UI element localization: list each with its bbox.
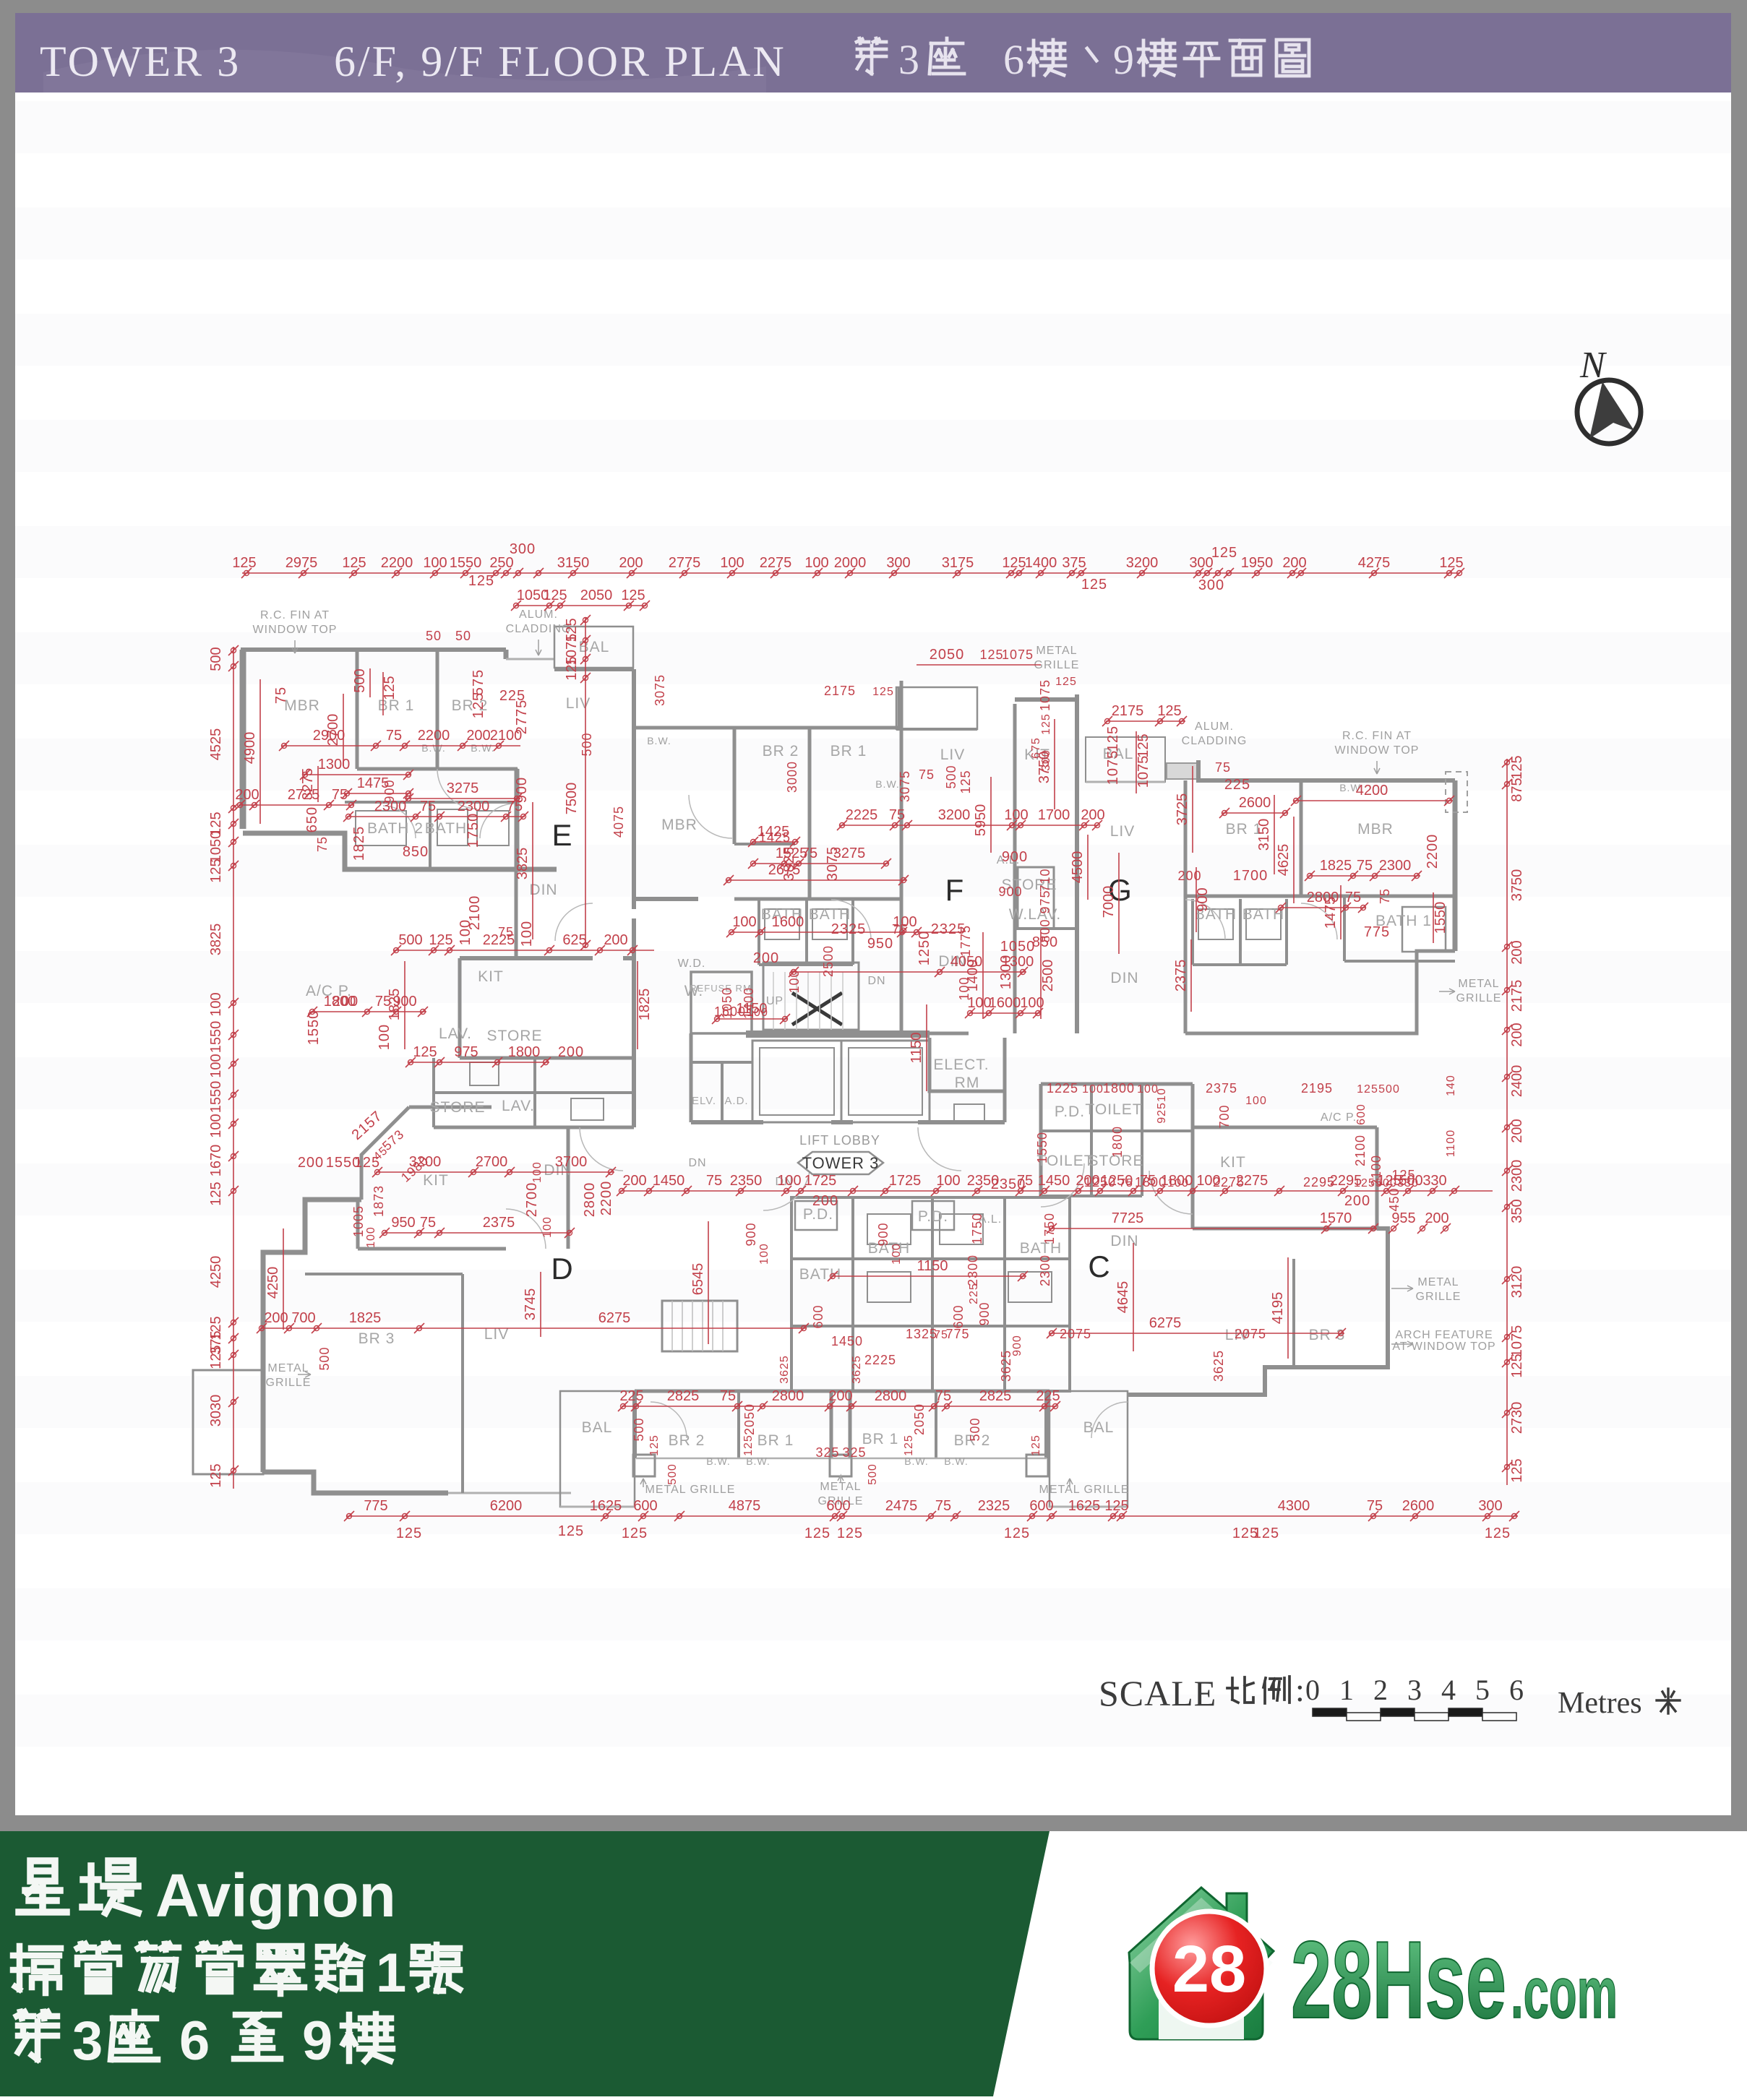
svg-text:BATH 2: BATH 2	[367, 820, 424, 837]
svg-text:2200: 2200	[381, 555, 413, 571]
svg-text:50: 50	[455, 629, 471, 643]
svg-text:.com: .com	[1511, 1953, 1618, 2034]
svg-text:2: 2	[1373, 1674, 1388, 1706]
svg-text:2225: 2225	[846, 807, 878, 823]
svg-text:4275: 4275	[1358, 555, 1391, 571]
svg-text:1625: 1625	[590, 1498, 622, 1514]
svg-text:1600: 1600	[772, 914, 804, 930]
svg-text:LIV: LIV	[566, 695, 591, 712]
svg-text:B.W.: B.W.	[421, 742, 446, 754]
svg-text:775: 775	[364, 1498, 387, 1514]
svg-text:1950: 1950	[1241, 555, 1274, 571]
svg-text:500: 500	[632, 1417, 646, 1441]
svg-text:GRILLE: GRILLE	[266, 1377, 312, 1389]
svg-text:KIT: KIT	[1220, 1154, 1246, 1171]
svg-text:R.C. FIN AT: R.C. FIN AT	[1342, 730, 1412, 742]
svg-text:200: 200	[828, 1388, 852, 1404]
svg-text:2475: 2475	[885, 1498, 918, 1514]
svg-text:1225: 1225	[1047, 1081, 1078, 1096]
svg-text:B.W.: B.W.	[706, 1455, 731, 1467]
svg-text:125: 125	[648, 1434, 661, 1456]
svg-text:DIN: DIN	[529, 882, 557, 898]
svg-text:6: 6	[1003, 36, 1024, 83]
svg-text:125: 125	[742, 1434, 755, 1456]
svg-text:BR 3: BR 3	[359, 1330, 395, 1347]
svg-text:2775: 2775	[514, 700, 530, 735]
svg-text:2175: 2175	[1112, 703, 1144, 719]
svg-text:WINDOW TOP: WINDOW TOP	[253, 624, 338, 636]
svg-text:28: 28	[1172, 1932, 1246, 2006]
svg-text:1825: 1825	[349, 1310, 382, 1326]
svg-text:125: 125	[382, 676, 398, 700]
svg-text:KIT: KIT	[478, 968, 504, 985]
svg-text:200: 200	[753, 950, 779, 966]
svg-text:6/F, 9/F FLOOR PLAN: 6/F, 9/F FLOOR PLAN	[334, 38, 786, 85]
svg-text:500: 500	[1375, 1177, 1397, 1189]
svg-text:1325: 1325	[906, 1327, 937, 1341]
svg-text:225: 225	[968, 1283, 980, 1304]
svg-text:900: 900	[514, 777, 530, 803]
svg-text:BR 2: BR 2	[763, 743, 799, 759]
svg-text:3: 3	[898, 36, 919, 83]
svg-text:125: 125	[1354, 1177, 1375, 1189]
svg-text:ELECT.: ELECT.	[933, 1057, 989, 1073]
svg-text:Metres: Metres	[1558, 1687, 1642, 1720]
svg-text:2175: 2175	[1509, 980, 1525, 1012]
svg-text:100: 100	[208, 992, 224, 1016]
svg-text:2100: 2100	[467, 895, 483, 931]
svg-text:2050: 2050	[930, 647, 965, 663]
svg-text:200: 200	[235, 787, 259, 803]
svg-text:2050: 2050	[742, 1403, 757, 1435]
svg-text:125: 125	[342, 555, 366, 571]
svg-text:F: F	[945, 873, 965, 907]
svg-text:2295: 2295	[1303, 1175, 1335, 1189]
svg-text:BAL: BAL	[582, 1419, 613, 1436]
svg-text:125: 125	[564, 656, 580, 680]
svg-text:200: 200	[1425, 1210, 1448, 1226]
svg-text:975: 975	[454, 1044, 478, 1060]
svg-text:1550: 1550	[306, 1010, 322, 1046]
svg-text:3075: 3075	[653, 674, 667, 706]
svg-text:125: 125	[1509, 755, 1525, 779]
svg-text:1: 1	[1339, 1674, 1354, 1706]
svg-text:75: 75	[1367, 1498, 1383, 1514]
svg-text:2200: 2200	[598, 1181, 614, 1216]
svg-text:1550: 1550	[208, 1021, 224, 1054]
svg-text:100: 100	[777, 1173, 801, 1189]
svg-text:6275: 6275	[598, 1310, 631, 1326]
svg-text:MBR: MBR	[1357, 821, 1394, 838]
svg-text:3275: 3275	[300, 768, 316, 801]
svg-text:500: 500	[867, 1463, 879, 1485]
svg-text:1800: 1800	[1103, 1081, 1135, 1096]
svg-text:1700: 1700	[1038, 807, 1070, 823]
svg-text:3075: 3075	[898, 770, 912, 802]
svg-text:500: 500	[208, 647, 224, 671]
svg-text:200: 200	[264, 1310, 288, 1326]
svg-text:1725: 1725	[889, 1173, 922, 1189]
svg-text:200: 200	[1509, 940, 1525, 964]
svg-text:75: 75	[375, 994, 391, 1010]
svg-text:75: 75	[1357, 858, 1373, 874]
svg-text:100: 100	[1245, 1095, 1267, 1107]
svg-text:100: 100	[208, 1054, 224, 1077]
svg-text:1800: 1800	[508, 1044, 541, 1060]
svg-text:600: 600	[1355, 1103, 1368, 1125]
svg-text:200: 200	[1509, 1023, 1525, 1046]
svg-text:2075: 2075	[1235, 1327, 1266, 1341]
svg-text:775: 775	[945, 1327, 969, 1341]
svg-text:100: 100	[967, 995, 991, 1011]
svg-text:2075: 2075	[1060, 1327, 1091, 1341]
svg-text:500: 500	[398, 932, 422, 948]
svg-text:2500: 2500	[821, 945, 836, 977]
svg-text:125: 125	[872, 686, 894, 698]
svg-text:9: 9	[1113, 36, 1134, 83]
svg-text:600: 600	[633, 1498, 657, 1514]
svg-text:2325: 2325	[831, 921, 867, 937]
svg-text:7725: 7725	[1112, 1210, 1144, 1226]
svg-text:75: 75	[1215, 760, 1231, 775]
svg-text:A/C P.: A/C P.	[1321, 1111, 1357, 1124]
svg-text:75: 75	[1119, 1177, 1133, 1189]
svg-text:200: 200	[604, 932, 627, 948]
svg-text:UP: UP	[766, 995, 784, 1007]
svg-text:125: 125	[1157, 703, 1181, 719]
svg-text:2175: 2175	[824, 684, 856, 698]
svg-text:600: 600	[951, 1304, 966, 1328]
svg-text:3700: 3700	[555, 1154, 588, 1170]
svg-text:950: 950	[867, 936, 893, 952]
svg-text:200: 200	[619, 555, 643, 571]
svg-text:125: 125	[1253, 1525, 1279, 1541]
svg-text:75: 75	[919, 767, 935, 782]
svg-text:200: 200	[1282, 555, 1306, 571]
svg-text:2350: 2350	[991, 1176, 1026, 1192]
svg-text:6545: 6545	[690, 1263, 706, 1296]
svg-text:ALUM.: ALUM.	[1195, 720, 1234, 733]
svg-text:4075: 4075	[611, 806, 626, 838]
svg-text:3745: 3745	[523, 1288, 538, 1321]
svg-text:6: 6	[179, 2010, 210, 2072]
svg-text:ALUM.: ALUM.	[519, 608, 558, 621]
svg-text:2600: 2600	[1402, 1498, 1435, 1514]
svg-text:B.W.: B.W.	[471, 742, 495, 754]
svg-text:500: 500	[1378, 1083, 1400, 1096]
svg-text:1005: 1005	[351, 1205, 366, 1237]
svg-text:125: 125	[208, 1182, 224, 1205]
svg-text:2775: 2775	[669, 555, 701, 571]
svg-text:2375: 2375	[1206, 1081, 1237, 1096]
svg-text:P.D.: P.D.	[918, 1208, 948, 1225]
svg-text:200: 200	[558, 1044, 584, 1060]
svg-text:B.W.: B.W.	[647, 735, 671, 746]
svg-text:1475: 1475	[1323, 897, 1339, 929]
svg-text:4875: 4875	[729, 1498, 761, 1514]
svg-text:125: 125	[1439, 555, 1463, 571]
svg-text:4900: 4900	[242, 732, 258, 765]
svg-text:METAL GRILLE: METAL GRILLE	[1039, 1484, 1130, 1496]
svg-text:500: 500	[580, 732, 594, 756]
svg-text:500: 500	[944, 765, 958, 788]
svg-text:2800: 2800	[875, 1388, 907, 1404]
svg-text:STORE: STORE	[487, 1028, 543, 1044]
svg-text:C: C	[1088, 1249, 1110, 1283]
svg-text:50: 50	[426, 629, 442, 643]
svg-text:W.D.: W.D.	[678, 958, 706, 970]
svg-text:300: 300	[1198, 577, 1224, 593]
svg-text:100: 100	[208, 1114, 224, 1137]
svg-text:1: 1	[376, 1942, 406, 2004]
svg-text:600: 600	[1029, 1498, 1053, 1514]
svg-text:BATH: BATH	[809, 906, 851, 923]
svg-text:2225: 2225	[483, 932, 515, 948]
svg-text:125: 125	[837, 1525, 863, 1541]
svg-text:DIN: DIN	[1110, 970, 1138, 986]
svg-text:4525: 4525	[208, 728, 224, 761]
svg-text:3275: 3275	[447, 780, 479, 796]
svg-text:200: 200	[1344, 1193, 1370, 1209]
svg-text:125: 125	[208, 1345, 224, 1369]
svg-text:CLADDING: CLADDING	[506, 623, 572, 635]
svg-text:4500: 4500	[1070, 851, 1086, 884]
svg-text:2730: 2730	[1509, 1402, 1525, 1434]
svg-text:2600: 2600	[1239, 795, 1271, 811]
svg-text:1873: 1873	[372, 1185, 386, 1217]
svg-text:2300: 2300	[1038, 1255, 1052, 1286]
svg-text:BATH: BATH	[425, 820, 467, 837]
svg-text:6200: 6200	[490, 1498, 523, 1514]
svg-text:BAL: BAL	[1083, 1419, 1115, 1436]
svg-text:125: 125	[543, 588, 567, 603]
svg-text:3200: 3200	[1126, 555, 1159, 571]
svg-text:5950: 5950	[973, 804, 989, 837]
svg-text:1570: 1570	[1320, 1210, 1352, 1226]
svg-text:4: 4	[1441, 1674, 1456, 1706]
svg-text:1825: 1825	[637, 989, 653, 1021]
svg-text:1750: 1750	[465, 813, 481, 848]
svg-text:METAL GRILLE: METAL GRILLE	[645, 1484, 736, 1496]
svg-text:900: 900	[744, 1222, 758, 1246]
svg-text:100: 100	[1167, 1177, 1189, 1189]
svg-text:3150: 3150	[1256, 819, 1272, 851]
svg-text:METAL: METAL	[267, 1362, 309, 1374]
svg-text:775: 775	[1364, 924, 1390, 940]
svg-text:125: 125	[413, 1044, 437, 1060]
svg-text:1725: 1725	[804, 1173, 837, 1189]
svg-text:4250: 4250	[208, 1256, 224, 1288]
svg-text:DN: DN	[688, 1157, 706, 1169]
svg-text:B.W.: B.W.	[875, 778, 900, 790]
svg-text:900: 900	[1195, 887, 1211, 911]
svg-text:2275: 2275	[760, 555, 792, 571]
svg-text:950: 950	[391, 1215, 415, 1231]
svg-text:330: 330	[1422, 1173, 1446, 1189]
svg-text:900: 900	[392, 994, 416, 1010]
svg-text:125: 125	[903, 1434, 915, 1456]
svg-text:100: 100	[758, 1243, 771, 1265]
svg-text:92510: 92510	[1156, 1088, 1168, 1124]
svg-text:LIV: LIV	[1110, 823, 1136, 840]
svg-text:325: 325	[815, 1445, 839, 1460]
svg-text:300: 300	[1040, 749, 1052, 771]
svg-text:CLADDING: CLADDING	[1182, 735, 1248, 747]
svg-text:500: 500	[968, 1417, 982, 1441]
svg-text:75: 75	[934, 1329, 948, 1341]
svg-text:BR 1: BR 1	[757, 1432, 794, 1449]
svg-text:125: 125	[558, 1523, 584, 1539]
svg-text:125: 125	[468, 573, 494, 589]
svg-text:2800: 2800	[582, 1182, 598, 1218]
svg-text:710: 710	[1038, 868, 1052, 892]
svg-text:1775: 1775	[958, 925, 973, 957]
svg-text:1425: 1425	[759, 830, 791, 845]
svg-text:1800: 1800	[1135, 1175, 1167, 1189]
svg-text:900: 900	[998, 885, 1022, 899]
svg-text:1800: 1800	[1110, 1126, 1125, 1158]
svg-text:100: 100	[804, 555, 828, 571]
svg-text:125: 125	[208, 858, 224, 882]
svg-text:325: 325	[842, 1445, 866, 1460]
svg-text:100: 100	[377, 1024, 392, 1050]
svg-text:125: 125	[429, 932, 452, 948]
svg-text:140: 140	[1445, 1075, 1457, 1096]
svg-text:125: 125	[804, 1525, 830, 1541]
svg-text:100: 100	[365, 1226, 377, 1248]
svg-text:SCALE: SCALE	[1099, 1673, 1216, 1713]
svg-text:4625: 4625	[1276, 844, 1292, 877]
svg-text:1300: 1300	[1002, 954, 1034, 970]
svg-text:2825: 2825	[979, 1388, 1012, 1404]
svg-text:7500: 7500	[564, 783, 580, 815]
svg-text:1250: 1250	[917, 931, 932, 966]
svg-text:900: 900	[977, 1301, 992, 1325]
svg-text:2200: 2200	[418, 728, 450, 744]
svg-text:2275: 2275	[1213, 1175, 1245, 1189]
svg-text:2100: 2100	[1353, 1135, 1368, 1166]
svg-text:9: 9	[302, 2010, 332, 2072]
svg-text:STORE: STORE	[430, 1099, 486, 1116]
svg-text:75: 75	[720, 1388, 736, 1404]
svg-text:850: 850	[403, 844, 429, 860]
svg-text:2500: 2500	[1040, 960, 1056, 992]
svg-text:1050: 1050	[1000, 939, 1036, 955]
svg-text:200: 200	[298, 1155, 324, 1171]
svg-text:300: 300	[1189, 555, 1213, 571]
svg-text:7000: 7000	[1101, 886, 1117, 918]
svg-text:700: 700	[1217, 1104, 1232, 1128]
svg-text:100: 100	[890, 1243, 903, 1265]
svg-text:100: 100	[531, 1161, 544, 1183]
svg-text:600: 600	[811, 1304, 825, 1328]
svg-text:1600: 1600	[714, 1004, 746, 1019]
svg-text:300: 300	[510, 541, 536, 557]
svg-text:P.D.: P.D.	[1055, 1103, 1085, 1120]
svg-text:3825: 3825	[781, 846, 797, 882]
svg-text:125: 125	[1357, 1083, 1378, 1096]
svg-text:3625: 3625	[851, 1355, 863, 1384]
svg-text:955: 955	[1391, 1210, 1415, 1226]
svg-text:BR 1: BR 1	[862, 1431, 899, 1447]
svg-text:B.W.: B.W.	[904, 1455, 929, 1467]
svg-text:900: 900	[1011, 1335, 1023, 1356]
svg-text:75: 75	[386, 728, 402, 744]
svg-text:1400: 1400	[1025, 555, 1057, 571]
svg-text:6: 6	[1509, 1674, 1524, 1706]
svg-text:ARCH FEATURE: ARCH FEATURE	[1395, 1329, 1493, 1341]
svg-text:75: 75	[420, 799, 436, 814]
svg-text:1550: 1550	[208, 1081, 224, 1114]
svg-text:125: 125	[1002, 555, 1026, 571]
svg-text:4195: 4195	[1270, 1292, 1286, 1325]
svg-text:125: 125	[1081, 577, 1107, 593]
svg-text:2225: 2225	[864, 1353, 896, 1367]
svg-text:125: 125	[1040, 713, 1052, 735]
svg-text:1750: 1750	[970, 1213, 984, 1244]
svg-text:6275: 6275	[1149, 1315, 1182, 1331]
svg-text:1670: 1670	[208, 1145, 224, 1177]
svg-text:DIN: DIN	[1110, 1233, 1138, 1249]
svg-text:75: 75	[1378, 888, 1392, 904]
svg-text:500: 500	[666, 1463, 679, 1485]
svg-text:3075: 3075	[825, 846, 841, 882]
svg-text:200: 200	[466, 728, 490, 744]
svg-text:1550: 1550	[1433, 902, 1448, 934]
svg-text:3750: 3750	[1509, 869, 1525, 902]
svg-text:1550: 1550	[450, 555, 482, 571]
svg-text:TOILET: TOILET	[1085, 1101, 1142, 1118]
svg-text:100: 100	[1020, 995, 1044, 1011]
svg-text:450: 450	[1387, 1187, 1402, 1211]
svg-text:MBR: MBR	[661, 817, 697, 833]
svg-text:3625: 3625	[778, 1355, 791, 1384]
svg-text:500: 500	[317, 1346, 332, 1370]
svg-text:1450: 1450	[1038, 1173, 1070, 1189]
svg-text:1800: 1800	[324, 994, 356, 1010]
svg-text:900: 900	[382, 779, 397, 803]
svg-text:METAL: METAL	[1458, 978, 1499, 990]
svg-text:BR 2: BR 2	[669, 1432, 705, 1449]
svg-text:75: 75	[420, 1215, 436, 1231]
svg-text:2375: 2375	[1173, 960, 1189, 992]
svg-text:75: 75	[935, 1498, 951, 1514]
svg-text:1625: 1625	[1068, 1498, 1101, 1514]
svg-text:1075: 1075	[1105, 750, 1121, 786]
svg-text:125: 125	[622, 1525, 648, 1541]
svg-text:125: 125	[1105, 726, 1121, 752]
svg-text:125: 125	[979, 647, 1003, 662]
svg-text:3175: 3175	[942, 555, 974, 571]
svg-text:125: 125	[1004, 1525, 1030, 1541]
svg-text:3825: 3825	[208, 924, 224, 956]
svg-text:E: E	[551, 818, 572, 852]
svg-text:75: 75	[315, 836, 330, 852]
svg-text:WINDOW TOP: WINDOW TOP	[1335, 744, 1420, 757]
svg-text:R.C. FIN AT: R.C. FIN AT	[260, 609, 330, 621]
svg-text:1150: 1150	[909, 1032, 924, 1063]
svg-text:125: 125	[208, 1463, 224, 1487]
svg-text:75: 75	[1345, 890, 1361, 905]
svg-text:A.D.: A.D.	[724, 1095, 748, 1107]
svg-text:2825: 2825	[667, 1388, 700, 1404]
svg-text:W.LAV.: W.LAV.	[1009, 906, 1062, 923]
svg-text:1450: 1450	[831, 1334, 863, 1348]
svg-text:3625: 3625	[1211, 1350, 1226, 1382]
svg-text:225: 225	[1036, 1388, 1060, 1404]
svg-text:1075: 1075	[1038, 679, 1052, 711]
svg-text:3200: 3200	[938, 807, 971, 823]
